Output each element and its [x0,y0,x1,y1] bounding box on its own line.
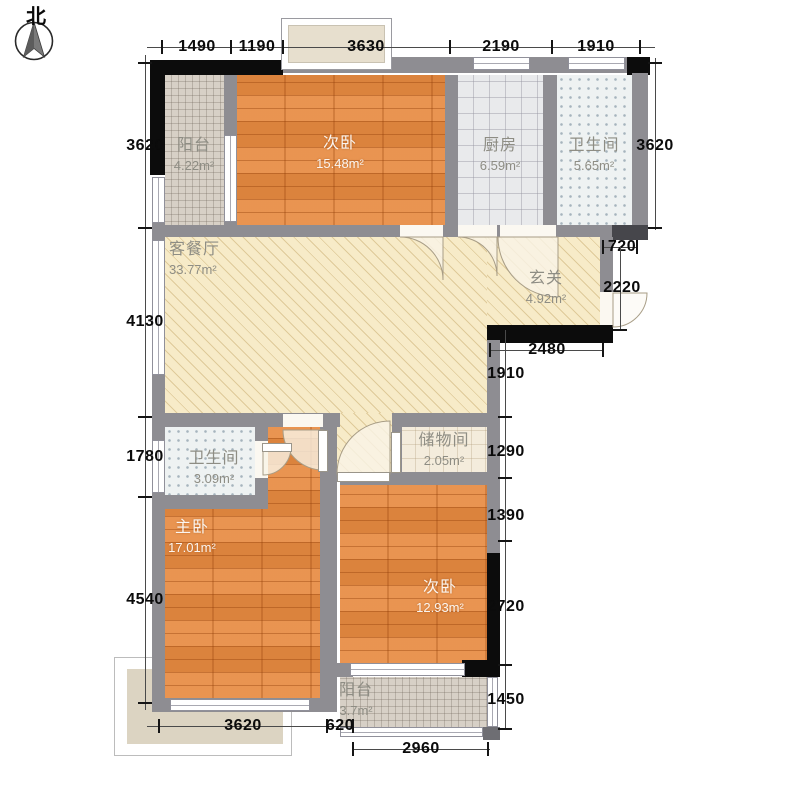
dim-tick [138,62,152,64]
room-label-balcony-south: 阳台 3.7m² [339,683,373,717]
dim-label: 2480 [528,342,566,358]
dim-tick [498,664,512,666]
dim-label: 1450 [487,692,525,708]
dim-label: 2960 [402,741,440,757]
dim-label: 4130 [126,314,164,330]
door-arcs [0,0,800,800]
dim-tick [648,227,662,229]
dim-label: 3630 [347,39,385,55]
dim-tick [161,40,163,54]
dim-tick [648,62,662,64]
door-leaf [337,472,390,482]
dim-tick [498,728,512,730]
dim-tick [158,719,160,733]
dim-tick [449,40,451,54]
dim-tick [489,343,491,357]
dim-label: 620 [326,718,354,734]
dim-label: 1490 [178,39,216,55]
floor-plan: 北 [0,0,800,800]
dimension-line [505,330,506,729]
dim-label: 1190 [239,39,276,55]
dim-tick [498,540,512,542]
dim-label: 2190 [482,39,520,55]
room-label-balcony-north: 阳台 4.22m² [174,138,214,172]
dim-tick [602,343,604,357]
dim-tick [282,40,284,54]
room-label-bedroom-north: 次卧 15.48m² [316,136,364,170]
door-leaf [262,443,292,452]
dim-label: 3620 [636,138,674,154]
dim-tick [551,40,553,54]
room-label-storage: 储物间 2.05m² [418,433,469,467]
dim-tick [230,40,232,54]
dim-label: 1910 [487,366,525,382]
room-label-bedroom-south: 次卧 12.93m² [416,580,464,614]
room-label-kitchen: 厨房 6.59m² [480,138,520,172]
dim-tick [487,742,489,756]
dim-tick [498,477,512,479]
room-label-living: 客餐厅 33.77m² [169,242,220,276]
dim-tick [602,240,604,254]
room-label-master: 主卧 17.01m² [168,520,216,554]
dim-label: 1910 [577,39,615,55]
room-label-foyer: 玄关 4.92m² [526,271,566,305]
dim-tick [636,240,638,254]
room-label-bath-north: 卫生间 5.65m² [568,138,619,172]
dim-tick [498,416,512,418]
dim-label: 2720 [487,599,525,615]
dim-tick [138,227,152,229]
dim-tick [613,329,627,331]
dim-label: 1390 [487,508,525,524]
dim-label: 4540 [126,592,164,608]
door-leaf [318,430,328,472]
dim-tick [352,742,354,756]
door-leaf [391,432,401,473]
dim-tick [138,416,152,418]
dim-label: 720 [608,239,636,255]
dim-label: 1780 [126,449,164,465]
dim-label: 2220 [603,280,641,296]
dim-tick [138,496,152,498]
room-label-bath-south: 卫生间 3.09m² [188,451,239,485]
dim-tick [138,702,152,704]
dim-label: 3620 [224,718,262,734]
dim-label: 1290 [487,444,525,460]
dim-tick [639,40,641,54]
dim-label: 3620 [126,138,164,154]
